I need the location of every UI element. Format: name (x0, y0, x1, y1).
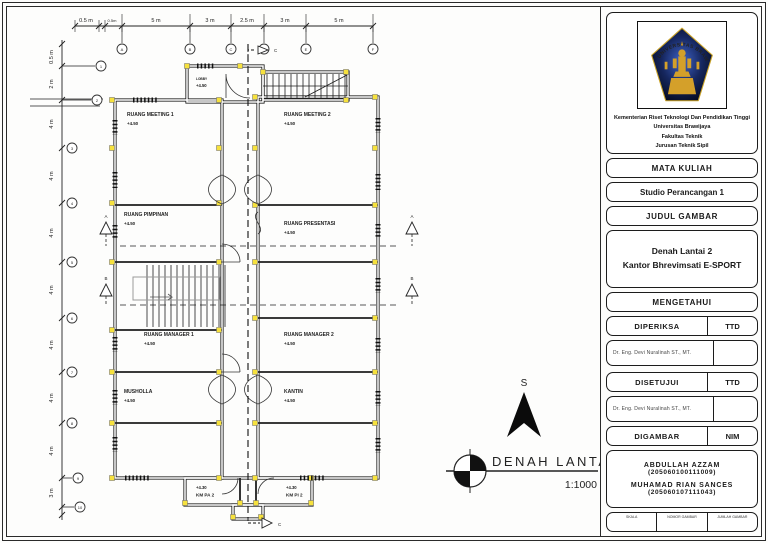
universitas-brawijaya-emblem: UNIVERSITAS BRAWIJAYA (645, 26, 719, 104)
room-labels: RUANG MEETING 1 +4.50 RUANG MEETING 2 +4… (124, 77, 336, 498)
room-label: MUSHOLLA (124, 389, 153, 395)
svg-text:3 m: 3 m (49, 488, 55, 498)
svg-text:2 m: 2 m (49, 79, 55, 89)
disetujui-row: DISETUJUI TTD (606, 372, 758, 392)
svg-text:4 m: 4 m (49, 228, 55, 238)
room-elev: +4.50 (144, 341, 156, 346)
room-elev: +4.30 (286, 485, 297, 490)
author-nim: (205060100111009) (648, 469, 716, 476)
drawing-sheet: 0.5 m 0.5m 5 m 3 m 2.5 m 3 m 5 m A B C D… (0, 0, 768, 543)
dim-label: 0.5m (108, 18, 118, 23)
svg-text:4 m: 4 m (49, 285, 55, 295)
mata-kuliah-header: MATA KULIAH (606, 158, 758, 178)
section-label-c: C (278, 522, 282, 527)
disetujui-label: DISETUJUI (607, 373, 708, 391)
room-label: RUANG MEETING 1 (127, 112, 174, 118)
digambar-row: DIGAMBAR NIM (606, 426, 758, 446)
svg-text:C: C (230, 47, 233, 52)
room-elev: +4.50 (284, 398, 296, 403)
svg-text:4 m: 4 m (49, 171, 55, 181)
ttd-label: TTD (708, 317, 757, 335)
digambar-label: DIGAMBAR (607, 427, 708, 445)
dim-label: 3 m (280, 18, 290, 24)
ttd-signature-cell (714, 397, 757, 421)
mata-kuliah-value: Studio Perancangan 1 (606, 182, 758, 202)
stair-top (263, 74, 348, 98)
dim-label: 2.5 m (240, 18, 254, 24)
room-elev: +4.50 (124, 221, 136, 226)
judul-gambar-header: JUDUL GAMBAR (606, 206, 758, 226)
author-name: MUHAMAD RIAN SANCES (631, 482, 733, 489)
drawing-title-group: DENAH LANTAI 2 1:1000 (446, 449, 600, 493)
diperiksa-row: DIPERIKSA TTD (606, 316, 758, 336)
svg-text:4 m: 4 m (49, 119, 55, 129)
author-name: ABDULLAH AZZAM (644, 462, 720, 469)
logo-box: UNIVERSITAS BRAWIJAYA Kementerian Riset … (606, 12, 758, 154)
windows (115, 66, 378, 478)
room-label: KM PI 2 (286, 493, 303, 498)
judul-gambar-value: Denah Lantai 2 Kantor Bhrevimsati E-SPOR… (606, 230, 758, 288)
svg-text:E: E (305, 47, 308, 52)
left-dimension: 0.5 m 2 m 4 m 4 m 4 m 4 m 4 m 4 m 4 m 3 … (30, 40, 103, 520)
yellow-columns (110, 64, 378, 520)
doors (209, 74, 275, 494)
dim-label: 3 m (205, 18, 215, 24)
room-elev: +4.50 (196, 83, 207, 88)
room-label: RUANG MANAGER 1 (144, 332, 194, 338)
floor-plan: 0.5 m 0.5m 5 m 3 m 2.5 m 3 m 5 m A B C D… (0, 0, 600, 543)
drawing-scale: 1:1000 (565, 479, 597, 491)
author-nim: (205060107111043) (648, 489, 716, 496)
approver-row: Dr. Eng. Devi Nuralinah ST., MT. (606, 396, 758, 422)
north-label: S (521, 378, 528, 389)
section-arrow-c-bottom (262, 518, 272, 528)
interior-walls (115, 205, 378, 505)
room-label: RUANG PIMPINAN (124, 212, 169, 218)
svg-text:10: 10 (78, 505, 83, 510)
room-label: RUANG MANAGER 2 (284, 332, 334, 338)
room-label: LOBBY (196, 77, 208, 81)
room-elev: +4.50 (127, 121, 139, 126)
room-elev: +4.30 (196, 485, 207, 490)
footer-cell-nomor-gambar: NOMOR GAMBAR (657, 513, 707, 531)
institution-line: Jurusan Teknik Sipil (614, 142, 750, 151)
titleblock-separator (600, 6, 601, 537)
section-line-center: C C (248, 44, 282, 528)
svg-text:4 m: 4 m (49, 393, 55, 403)
approver-name: Dr. Eng. Devi Nuralinah ST., MT. (607, 397, 714, 421)
diperiksa-label: DIPERIKSA (607, 317, 708, 335)
institution-line: Universitas Brawijaya (614, 123, 750, 132)
grid-bubbles-left: 12345678910 (67, 61, 106, 512)
footer-cell-jumlah-gambar: JUMLAH GAMBAR (708, 513, 757, 531)
ttd-signature-cell (714, 341, 757, 365)
judul-line-2: Kantor Bhrevimsati E-SPORT (623, 259, 742, 273)
room-label: KM PA 2 (196, 493, 215, 498)
stair-main (133, 265, 225, 327)
judul-line-1: Denah Lantai 2 (652, 245, 712, 259)
section-label-b: B (104, 276, 107, 281)
mata-kuliah-label: MATA KULIAH (652, 164, 713, 173)
room-elev: +4.50 (284, 121, 296, 126)
university-logo: UNIVERSITAS BRAWIJAYA (637, 21, 727, 109)
examiner-row: Dr. Eng. Devi Nuralinah ST., MT. (606, 340, 758, 366)
room-label: RUANG PRESENTASI (284, 221, 336, 227)
section-label-a: A (104, 214, 107, 219)
authors-box: ABDULLAH AZZAM (205060100111009) MUHAMAD… (606, 450, 758, 508)
institution-line: Fakultas Teknik (614, 133, 750, 142)
svg-text:4 m: 4 m (49, 340, 55, 350)
svg-text:A: A (121, 47, 124, 52)
room-elev: +4.50 (284, 341, 296, 346)
drawing-title: DENAH LANTAI 2 (492, 454, 600, 469)
ttd-label: TTD (708, 373, 757, 391)
institution-line: Kementerian Riset Teknologi Dan Pendidik… (614, 114, 750, 123)
section-label-a: A (410, 214, 413, 219)
footer-cell-skala: SKALA (607, 513, 657, 531)
institution-lines: Kementerian Riset Teknologi Dan Pendidik… (614, 114, 750, 151)
north-arrow: S (507, 378, 541, 437)
room-elev: +4.50 (124, 398, 136, 403)
room-elev: +4.50 (284, 230, 296, 235)
nim-label: NIM (708, 427, 757, 445)
svg-text:4 m: 4 m (49, 446, 55, 456)
dim-label: 5 m (334, 18, 344, 24)
dim-label: 0.5 m (79, 18, 93, 24)
svg-text:0.5 m: 0.5 m (49, 50, 55, 64)
dim-label: 5 m (151, 18, 161, 24)
svg-text:B: B (189, 47, 192, 52)
section-label-c: C (274, 48, 278, 53)
walls (115, 66, 378, 519)
mengetahui-header: MENGETAHUI (606, 292, 758, 312)
section-label-b: B (410, 276, 413, 281)
footer-strip: SKALA NOMOR GAMBAR JUMLAH GAMBAR (606, 512, 758, 532)
top-dimension: 0.5 m 0.5m 5 m 3 m 2.5 m 3 m 5 m (72, 14, 376, 43)
room-label: RUANG MEETING 2 (284, 112, 331, 118)
examiner-name: Dr. Eng. Devi Nuralinah ST., MT. (607, 341, 714, 365)
room-label: KANTIN (284, 389, 303, 395)
